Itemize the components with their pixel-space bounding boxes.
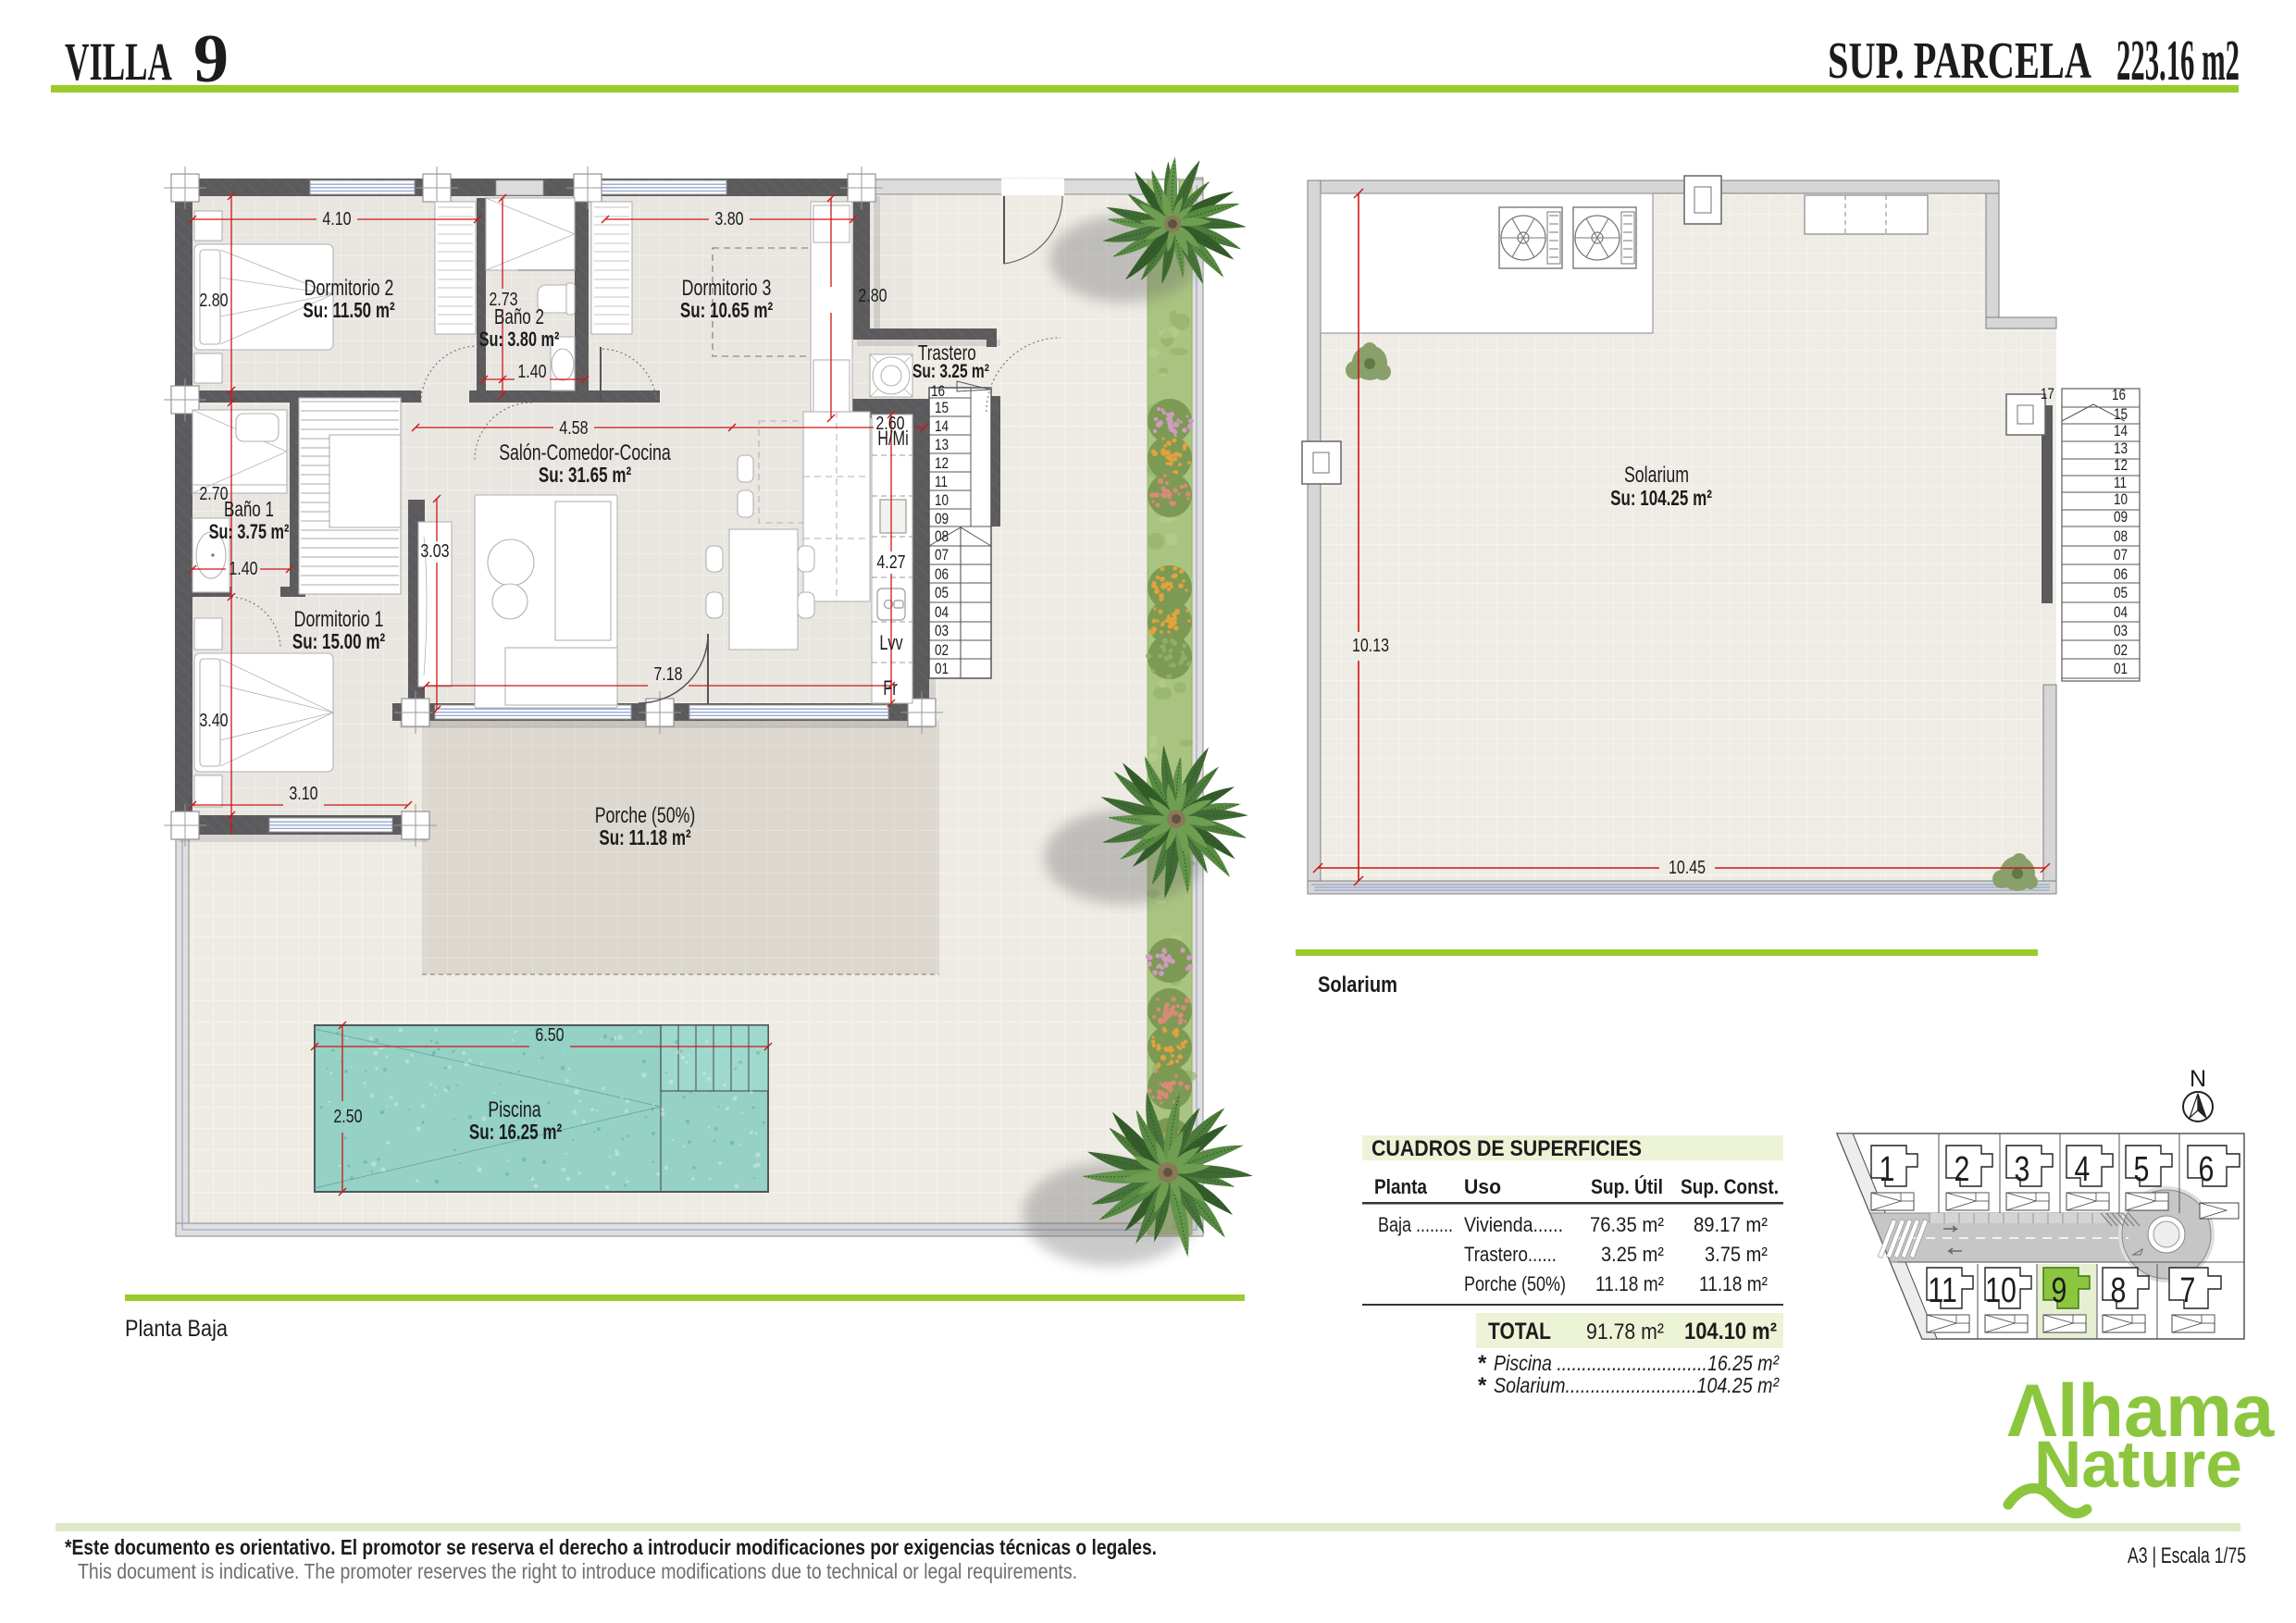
svg-text:223.16 m2: 223.16 m2 <box>2116 30 2240 93</box>
svg-text:Su: 3.25 m²: Su: 3.25 m² <box>912 361 989 382</box>
svg-text:Baño 1: Baño 1 <box>224 497 274 521</box>
svg-text:15: 15 <box>2114 405 2128 423</box>
svg-text:104.10 m²: 104.10 m² <box>1684 1319 1777 1344</box>
svg-text:13: 13 <box>935 436 949 453</box>
svg-text:5: 5 <box>2134 1150 2150 1189</box>
svg-text:Porche (50%): Porche (50%) <box>595 803 696 828</box>
svg-text:09: 09 <box>935 510 949 527</box>
svg-text:6: 6 <box>2199 1150 2215 1189</box>
svg-text:7: 7 <box>2180 1271 2196 1310</box>
svg-text:11.18 m²: 11.18 m² <box>1699 1272 1768 1295</box>
svg-text:Nature: Nature <box>2034 1429 2242 1502</box>
svg-text:08: 08 <box>2114 527 2128 545</box>
svg-text:03: 03 <box>2114 622 2128 639</box>
svg-text:11: 11 <box>2114 474 2127 491</box>
svg-text:3.40: 3.40 <box>199 711 228 731</box>
svg-text:4.27: 4.27 <box>876 552 905 573</box>
svg-text:2.80: 2.80 <box>858 286 887 306</box>
svg-text:Baño 2: Baño 2 <box>494 304 544 328</box>
svg-text:13: 13 <box>2114 440 2128 457</box>
svg-text:SUP. PARCELA: SUP. PARCELA <box>1828 32 2091 90</box>
svg-text:Vivienda......: Vivienda...... <box>1464 1213 1563 1236</box>
svg-text:09: 09 <box>2114 508 2128 526</box>
svg-text:Su: 3.80 m²: Su: 3.80 m² <box>479 328 560 351</box>
svg-text:04: 04 <box>2114 603 2128 621</box>
svg-text:15: 15 <box>935 399 949 416</box>
svg-text:3.75 m²: 3.75 m² <box>1705 1243 1768 1266</box>
svg-text:3.03: 3.03 <box>420 541 449 562</box>
svg-text:08: 08 <box>935 527 949 545</box>
svg-text:16: 16 <box>931 382 945 400</box>
svg-text:16: 16 <box>2112 386 2126 403</box>
svg-text:Porche (50%): Porche (50%) <box>1464 1272 1566 1295</box>
svg-text:Piscina ......................: Piscina ..............................16… <box>1494 1351 1780 1375</box>
svg-text:8: 8 <box>2111 1271 2127 1310</box>
svg-text:A3 | Escala 1/75: A3 | Escala 1/75 <box>2128 1543 2246 1568</box>
svg-text:6.50: 6.50 <box>535 1025 564 1046</box>
svg-text:Su: 3.75 m²: Su: 3.75 m² <box>209 520 290 543</box>
svg-text:*: * <box>1478 1351 1487 1376</box>
svg-text:10: 10 <box>935 491 949 509</box>
svg-text:7.18: 7.18 <box>653 664 682 685</box>
svg-text:12: 12 <box>2114 456 2128 474</box>
svg-text:H/Mi: H/Mi <box>877 427 909 450</box>
svg-text:VILLA: VILLA <box>65 31 172 92</box>
svg-text:Planta Baja: Planta Baja <box>125 1316 228 1342</box>
svg-text:Planta: Planta <box>1374 1175 1428 1198</box>
svg-text:14: 14 <box>935 417 949 435</box>
svg-text:Solarium: Solarium <box>1318 973 1397 997</box>
svg-text:Sup. Const.: Sup. Const. <box>1681 1175 1779 1198</box>
svg-text:17: 17 <box>2041 385 2054 403</box>
svg-text:10.45: 10.45 <box>1669 858 1706 878</box>
svg-text:Su: 104.25 m²: Su: 104.25 m² <box>1610 486 1712 510</box>
svg-text:4: 4 <box>2075 1150 2091 1189</box>
svg-text:CUADROS DE SUPERFICIES: CUADROS DE SUPERFICIES <box>1371 1136 1642 1161</box>
svg-text:02: 02 <box>935 641 949 659</box>
svg-text:Su: 16.25 m²: Su: 16.25 m² <box>469 1120 563 1144</box>
svg-text:Uso: Uso <box>1464 1175 1501 1198</box>
svg-text:4.58: 4.58 <box>559 418 588 439</box>
svg-text:06: 06 <box>2114 565 2128 583</box>
svg-text:Sup. Útil: Sup. Útil <box>1591 1175 1663 1198</box>
svg-text:TOTAL: TOTAL <box>1488 1319 1551 1344</box>
svg-text:N: N <box>2190 1066 2206 1092</box>
svg-text:10.13: 10.13 <box>1352 636 1389 656</box>
svg-text:89.17 m²: 89.17 m² <box>1694 1213 1768 1236</box>
svg-text:14: 14 <box>2114 422 2128 440</box>
svg-text:9: 9 <box>2052 1271 2067 1310</box>
svg-text:11: 11 <box>1928 1271 1957 1310</box>
svg-text:2: 2 <box>1955 1150 1970 1189</box>
svg-text:*: * <box>1478 1373 1487 1398</box>
svg-text:Su: 11.50 m²: Su: 11.50 m² <box>303 298 395 322</box>
svg-text:*Este documento es orientativo: *Este documento es orientativo. El promo… <box>65 1535 1157 1559</box>
svg-text:4.10: 4.10 <box>322 209 351 229</box>
svg-text:07: 07 <box>2114 546 2128 564</box>
svg-text:This document is indicative. T: This document is indicative. The promote… <box>78 1559 1077 1583</box>
svg-text:03: 03 <box>935 622 949 639</box>
svg-text:Su: 10.65 m²: Su: 10.65 m² <box>680 298 774 322</box>
svg-text:1.40: 1.40 <box>517 362 546 382</box>
svg-text:1: 1 <box>1880 1150 1895 1189</box>
svg-text:02: 02 <box>2114 641 2128 659</box>
svg-text:Dormitorio 1: Dormitorio 1 <box>294 607 384 632</box>
svg-text:1.40: 1.40 <box>229 559 257 579</box>
svg-text:3: 3 <box>2015 1150 2030 1189</box>
svg-text:Su: 11.18 m²: Su: 11.18 m² <box>599 825 691 849</box>
svg-text:2.80: 2.80 <box>199 291 228 311</box>
svg-text:05: 05 <box>935 584 949 601</box>
svg-text:Su: 31.65 m²: Su: 31.65 m² <box>539 463 632 487</box>
svg-text:Piscina: Piscina <box>488 1097 541 1122</box>
svg-text:Salón-Comedor-Cocina: Salón-Comedor-Cocina <box>499 440 671 465</box>
svg-text:Solarium......................: Solarium..........................104.25… <box>1494 1373 1780 1397</box>
svg-text:01: 01 <box>2114 660 2128 677</box>
svg-text:Trastero......: Trastero...... <box>1464 1243 1557 1266</box>
svg-text:Fr: Fr <box>883 676 897 700</box>
svg-text:12: 12 <box>935 454 949 472</box>
svg-text:Su: 15.00 m²: Su: 15.00 m² <box>292 629 386 653</box>
svg-text:05: 05 <box>2114 584 2128 601</box>
svg-text:3.80: 3.80 <box>714 209 743 229</box>
svg-text:Solarium: Solarium <box>1624 463 1689 488</box>
svg-text:Dormitorio 2: Dormitorio 2 <box>304 276 394 301</box>
svg-text:Baja ........: Baja ........ <box>1378 1213 1453 1236</box>
svg-text:01: 01 <box>935 660 949 677</box>
svg-text:10: 10 <box>2114 490 2128 508</box>
svg-text:3.10: 3.10 <box>289 784 317 804</box>
svg-text:10: 10 <box>1985 1271 2017 1310</box>
svg-text:07: 07 <box>935 546 949 564</box>
svg-text:Lvv: Lvv <box>879 631 902 654</box>
svg-text:04: 04 <box>935 603 949 621</box>
svg-text:11: 11 <box>935 473 948 490</box>
svg-text:11.18 m²: 11.18 m² <box>1595 1272 1664 1295</box>
svg-text:91.78 m²: 91.78 m² <box>1586 1319 1664 1344</box>
svg-text:3.25 m²: 3.25 m² <box>1601 1243 1664 1266</box>
svg-text:Dormitorio 3: Dormitorio 3 <box>682 276 772 301</box>
svg-text:06: 06 <box>935 565 949 583</box>
svg-text:2.50: 2.50 <box>333 1107 362 1127</box>
svg-text:76.35 m²: 76.35 m² <box>1590 1213 1664 1236</box>
